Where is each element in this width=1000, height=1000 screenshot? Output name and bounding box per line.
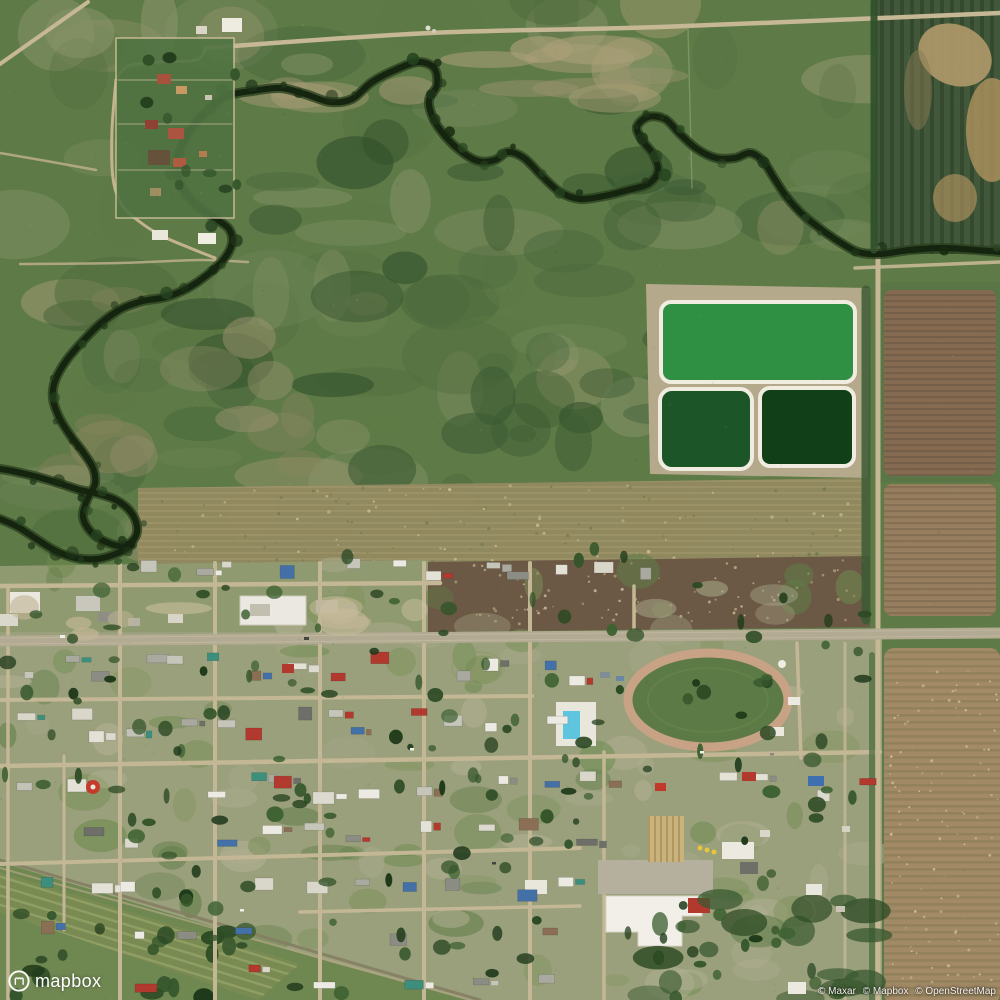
house (519, 818, 538, 830)
house (252, 773, 267, 781)
house (249, 965, 261, 972)
house (411, 709, 427, 716)
house (120, 882, 135, 892)
house (485, 723, 497, 732)
house (558, 877, 573, 886)
house (479, 824, 495, 831)
house (487, 562, 501, 568)
house (218, 840, 238, 847)
house (640, 568, 651, 580)
attribution: © Maxar © Mapbox © OpenStreetMap (814, 986, 996, 997)
house (313, 792, 334, 804)
house (393, 560, 406, 566)
house (41, 921, 54, 934)
pool-water (563, 711, 580, 739)
attribution-maxar[interactable]: © Maxar (818, 986, 856, 997)
house (255, 878, 274, 890)
house (208, 792, 226, 798)
house (331, 673, 345, 681)
house (351, 727, 364, 734)
sewage-lagoons (646, 284, 870, 478)
house (197, 568, 214, 575)
house (141, 560, 157, 572)
house (177, 931, 196, 939)
house (539, 974, 555, 983)
house (426, 571, 441, 580)
house (507, 572, 528, 580)
field-east-mid (884, 484, 996, 616)
house (280, 566, 294, 579)
house (421, 821, 432, 832)
house (329, 710, 343, 717)
house (545, 781, 560, 787)
house (403, 882, 417, 891)
house (543, 928, 558, 935)
house (304, 823, 324, 830)
field-northeast-crops (876, 0, 1000, 254)
house (92, 883, 113, 893)
house (609, 781, 622, 788)
house (314, 982, 336, 988)
house (860, 778, 877, 785)
lagoon-large (661, 302, 855, 382)
house (274, 776, 291, 788)
satellite-map-canvas[interactable]: mapbox © Maxar © Mapbox © OpenStreetMap (0, 0, 1000, 1000)
house (147, 654, 169, 663)
field-southeast (884, 648, 1000, 1000)
house (17, 783, 32, 791)
house (445, 878, 460, 890)
house (84, 828, 104, 836)
house (545, 661, 556, 670)
fallow-strip (138, 478, 870, 568)
lagoon-southwest (660, 389, 752, 469)
house (135, 932, 145, 939)
house (222, 562, 232, 568)
house (499, 776, 509, 784)
house (580, 771, 596, 781)
satellite-imagery (0, 0, 1000, 1000)
house (518, 890, 537, 902)
house (235, 928, 252, 935)
house (417, 787, 432, 796)
house (135, 984, 157, 992)
field-east-upper (876, 282, 1000, 482)
house (720, 772, 738, 780)
house (346, 836, 361, 842)
house (355, 879, 370, 885)
house (457, 671, 471, 681)
mapbox-wordmark: mapbox (35, 971, 101, 992)
house (207, 653, 219, 661)
house (547, 716, 568, 724)
lagoon-southeast (760, 388, 854, 466)
mapbox-logo[interactable]: mapbox (8, 970, 101, 992)
house (89, 731, 104, 742)
house (594, 562, 613, 573)
house (167, 656, 183, 665)
house (66, 656, 80, 663)
attribution-mapbox[interactable]: © Mapbox (863, 986, 909, 997)
house (72, 708, 93, 720)
house (17, 713, 35, 720)
mapbox-logo-icon (8, 970, 30, 992)
house (569, 676, 585, 686)
house (24, 672, 33, 679)
house (41, 877, 53, 887)
house (246, 728, 262, 740)
house (181, 719, 197, 726)
house (405, 980, 424, 989)
attribution-openstreetmap[interactable]: © OpenStreetMap (915, 986, 996, 997)
house (263, 825, 283, 834)
house (473, 979, 489, 985)
house (556, 565, 568, 575)
house (299, 707, 312, 720)
house (218, 720, 236, 728)
house (359, 789, 380, 798)
